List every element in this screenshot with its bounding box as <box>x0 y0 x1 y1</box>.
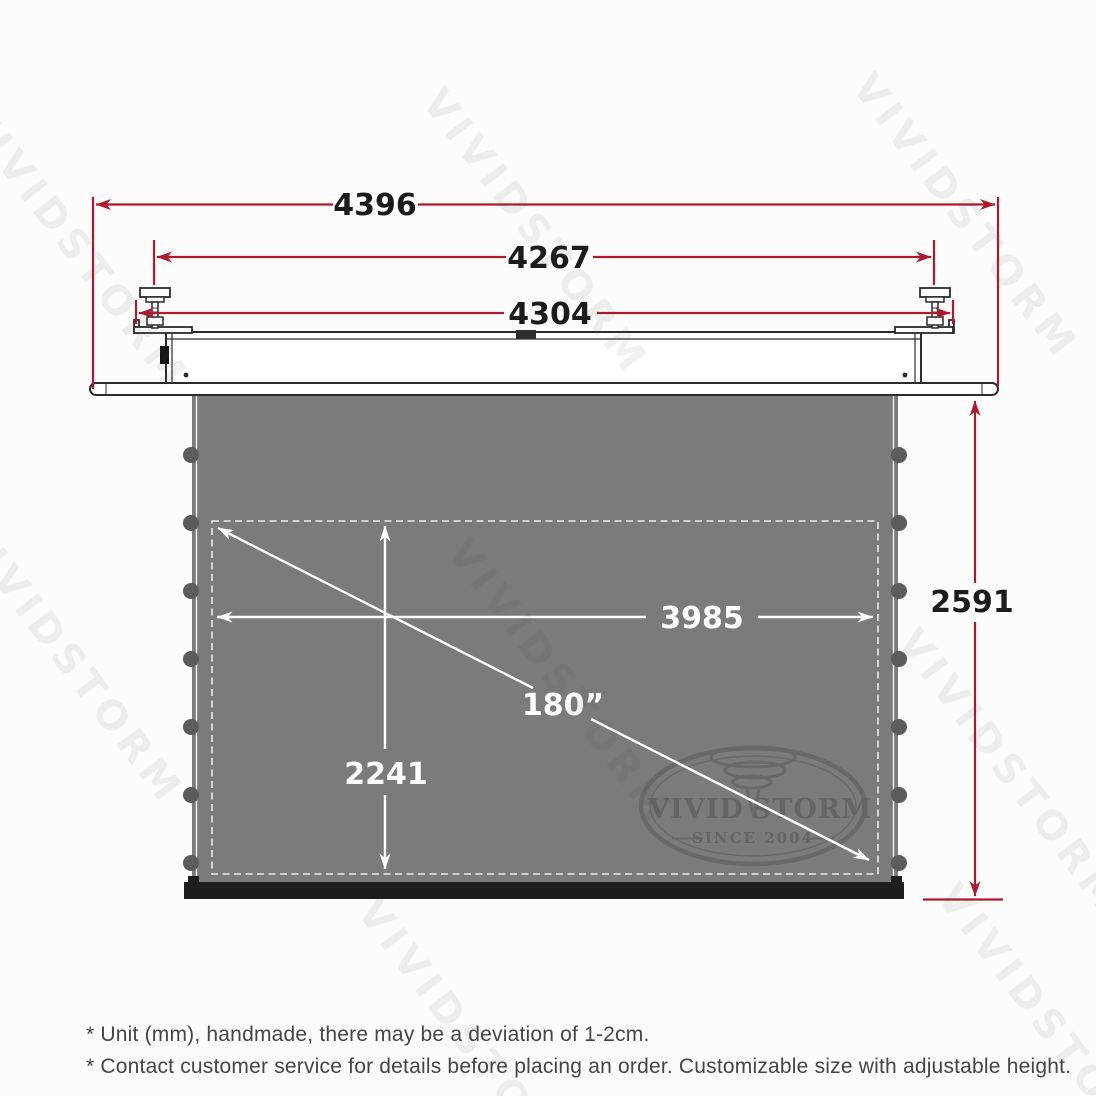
tension-knob <box>183 515 199 531</box>
watermark-text: VIVIDSTORM <box>888 620 1096 924</box>
housing-screw-right <box>903 373 908 378</box>
watermark-text: VIVIDSTORM <box>0 95 198 399</box>
note-contact: * Contact customer service for details b… <box>86 1055 1071 1078</box>
tension-knob <box>891 583 907 599</box>
tension-knob <box>183 583 199 599</box>
tension-knob <box>891 787 907 803</box>
viewing-height-label: 2241 <box>344 757 428 792</box>
logo-since-text: SINCE 2004 <box>692 829 814 847</box>
bottom-bar-end-left <box>188 876 199 883</box>
tension-knob <box>891 447 907 463</box>
tension-knob <box>183 651 199 667</box>
projector-screen-spec-diagram: VIVID STORM SINCE 2004 3985 2241 180” <box>0 0 1096 1096</box>
tension-knob <box>183 855 199 871</box>
viewing-width-label: 3985 <box>660 601 744 636</box>
tension-knob <box>183 719 199 735</box>
bracket-plate <box>895 327 953 333</box>
ceiling-trim-flange <box>90 383 998 395</box>
bolt-cap <box>140 288 170 297</box>
bottom-bar-end-right <box>891 876 902 883</box>
dim-overall-width-label: 4396 <box>333 188 417 223</box>
dim-drop-height-label: 2591 <box>930 585 1014 620</box>
tension-knob <box>183 447 199 463</box>
bolt-cap <box>920 288 950 297</box>
note-unit: * Unit (mm), handmade, there may be a de… <box>86 1023 649 1046</box>
bottom-weight-bar <box>184 882 904 899</box>
diagram-canvas: VIVID STORM SINCE 2004 3985 2241 180” <box>0 0 1096 1096</box>
tension-knob <box>891 515 907 531</box>
bolt-nut <box>927 317 943 325</box>
footer-notes: * Unit (mm), handmade, there may be a de… <box>86 1023 1071 1078</box>
watermark-text: VIVIDSTORM <box>843 65 1088 369</box>
housing-body <box>166 332 921 383</box>
mounting-bolt-right <box>895 288 954 333</box>
watermark-text: VIVIDSTORM <box>0 510 193 814</box>
tension-knob <box>891 855 907 871</box>
tension-knob <box>891 719 907 735</box>
